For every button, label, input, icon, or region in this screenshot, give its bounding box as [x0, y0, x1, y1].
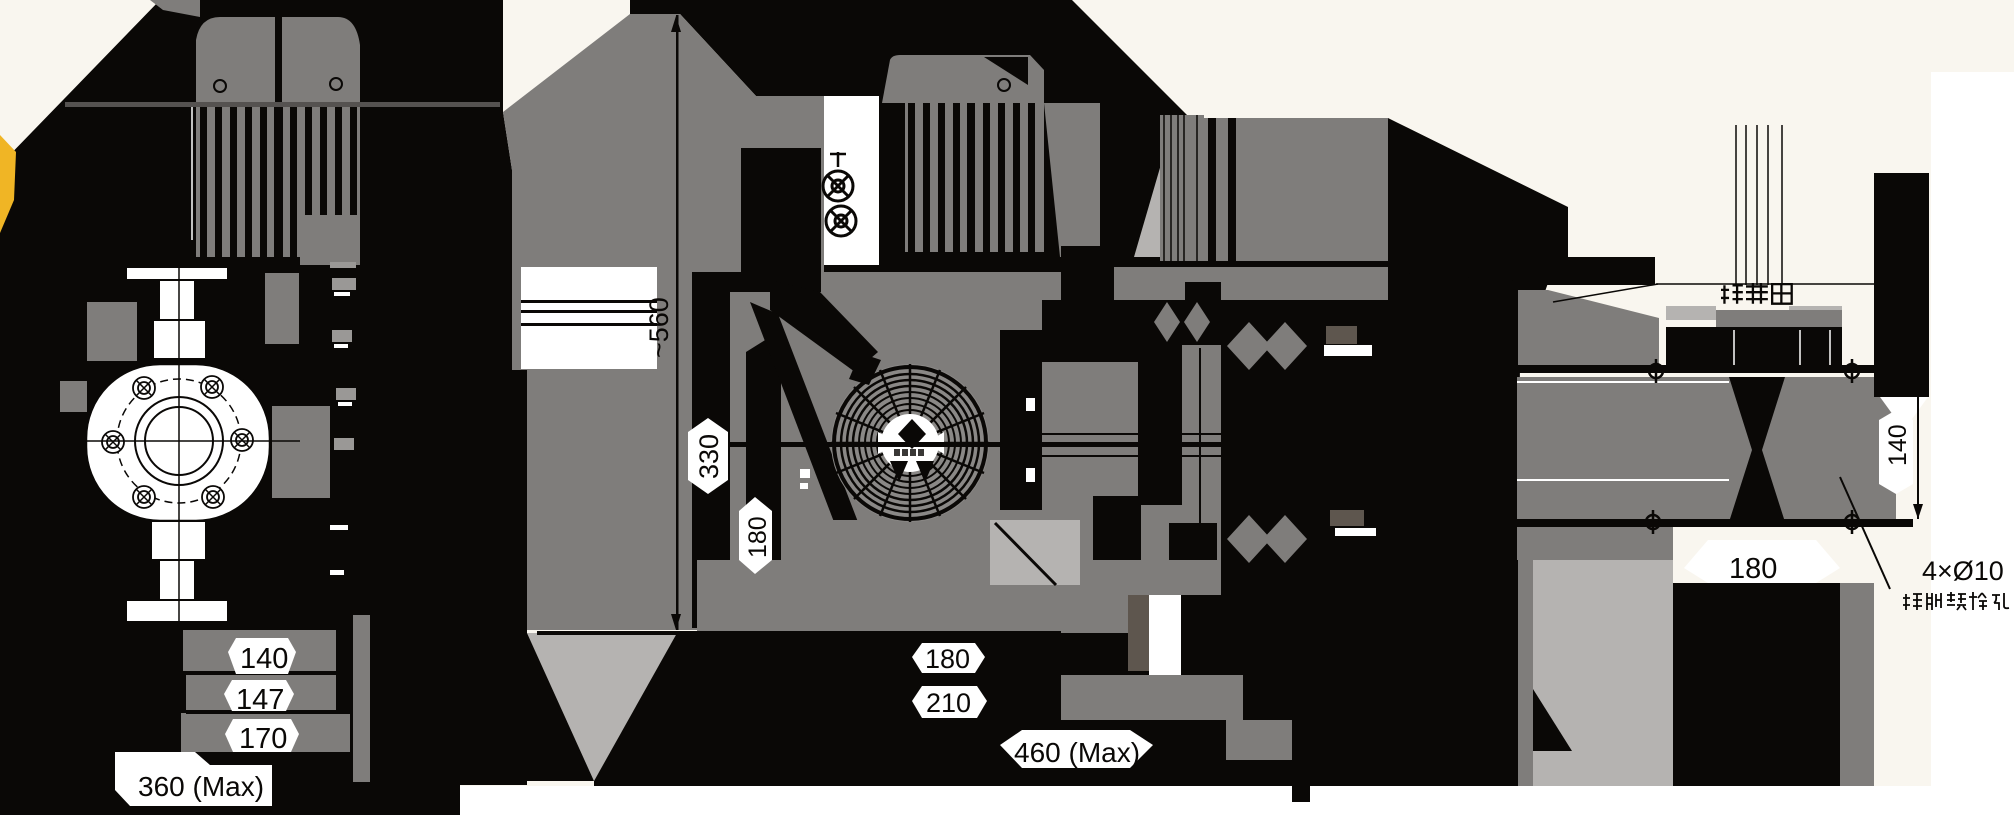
- svg-text:180: 180: [925, 644, 970, 674]
- svg-text:330: 330: [694, 434, 724, 479]
- svg-text:4×Ø10: 4×Ø10: [1922, 556, 2004, 586]
- svg-text:140: 140: [240, 643, 288, 675]
- svg-text:460 (Max): 460 (Max): [1014, 737, 1140, 768]
- svg-text:360 (Max): 360 (Max): [138, 771, 264, 802]
- svg-text:147: 147: [236, 684, 284, 716]
- svg-text:140: 140: [1884, 424, 1912, 466]
- svg-text:180: 180: [744, 516, 772, 558]
- svg-text:180: 180: [1729, 553, 1777, 585]
- svg-text:210: 210: [926, 688, 971, 718]
- svg-text:~560: ~560: [644, 297, 674, 358]
- svg-text:170: 170: [239, 723, 287, 755]
